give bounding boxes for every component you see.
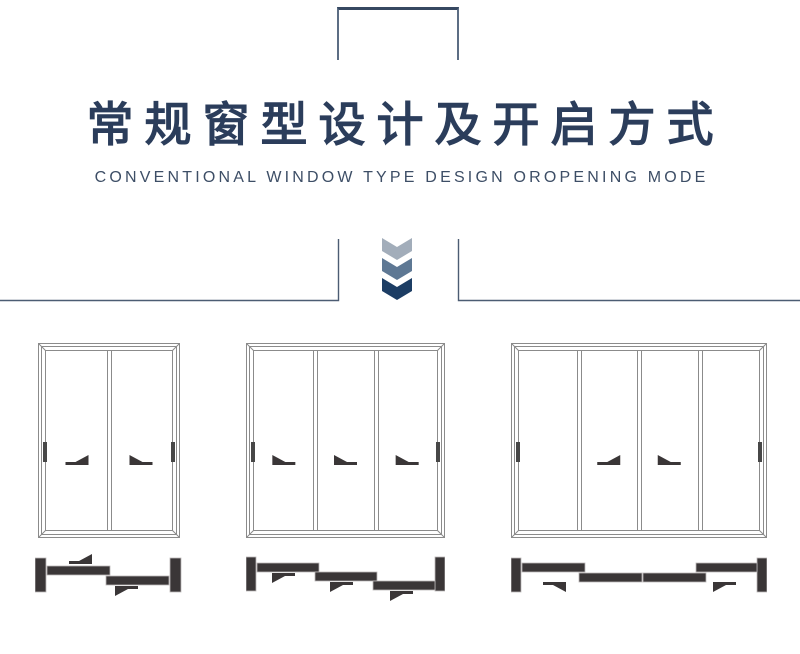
window-frame: [39, 344, 180, 538]
handle-left: [43, 442, 47, 462]
sliding-panel-bar: [579, 573, 642, 582]
window-frame: [512, 344, 767, 538]
mullion: [314, 350, 318, 531]
sliding-panel-bar: [315, 572, 377, 581]
chevron-down-icon: [382, 278, 412, 300]
window-elevation: [246, 343, 445, 538]
track-end-cap: [757, 558, 767, 592]
mullion: [638, 350, 642, 531]
track-end-cap: [435, 557, 445, 591]
four-panel-slider-diagram: [511, 343, 767, 543]
window-plan-view: [511, 551, 767, 603]
mullion: [108, 350, 112, 531]
slide-direction-arrow: [658, 455, 681, 465]
slide-direction-arrow: [543, 582, 566, 592]
window-plan-view: [246, 551, 445, 603]
sliding-panel-bar: [106, 576, 169, 585]
slide-direction-arrow: [272, 573, 295, 583]
window-plan-view: [35, 552, 182, 604]
slide-direction-arrow: [66, 455, 89, 465]
sliding-panel-bar: [47, 566, 110, 575]
handle-left: [251, 442, 255, 462]
chevron-down-icon: [382, 258, 412, 280]
mullion: [699, 350, 703, 531]
slide-direction-arrow: [713, 582, 736, 592]
sliding-panel-bar: [522, 563, 585, 572]
track-end-cap: [35, 558, 46, 592]
slide-direction-arrow: [597, 455, 620, 465]
three-panel-slider-diagram: [246, 343, 445, 543]
handle-right: [171, 442, 175, 462]
slide-direction-arrow: [390, 591, 413, 601]
track-end-cap: [170, 558, 181, 592]
window-frame: [247, 344, 445, 538]
window-elevation: [511, 343, 767, 538]
sliding-panel-bar: [373, 581, 435, 590]
track-end-cap: [511, 558, 521, 592]
sliding-panel-bar: [257, 563, 319, 572]
sliding-panel-bar: [696, 563, 757, 572]
handle-left: [516, 442, 520, 462]
mullion: [578, 350, 582, 531]
two-panel-slider-diagram: [38, 343, 180, 543]
slide-direction-arrow: [396, 455, 419, 465]
slide-direction-arrow: [334, 455, 357, 465]
top-bracket-decoration: [337, 7, 459, 60]
handle-right: [758, 442, 762, 462]
mullion: [375, 350, 379, 531]
sliding-panel-bar: [643, 573, 706, 582]
window-elevation: [38, 343, 180, 538]
slide-direction-arrow: [130, 455, 153, 465]
divider-with-chevrons: [0, 232, 800, 304]
chevron-down-icon: [382, 238, 412, 260]
slide-direction-arrow: [69, 554, 92, 564]
slide-direction-arrow: [272, 455, 295, 465]
slide-direction-arrow: [330, 582, 353, 592]
page-title: 常规窗型设计及开启方式: [0, 97, 800, 153]
page-subtitle: CONVENTIONAL WINDOW TYPE DESIGN OROPENIN…: [0, 169, 800, 187]
handle-right: [436, 442, 440, 462]
track-end-cap: [246, 557, 256, 591]
slide-direction-arrow: [115, 586, 138, 596]
